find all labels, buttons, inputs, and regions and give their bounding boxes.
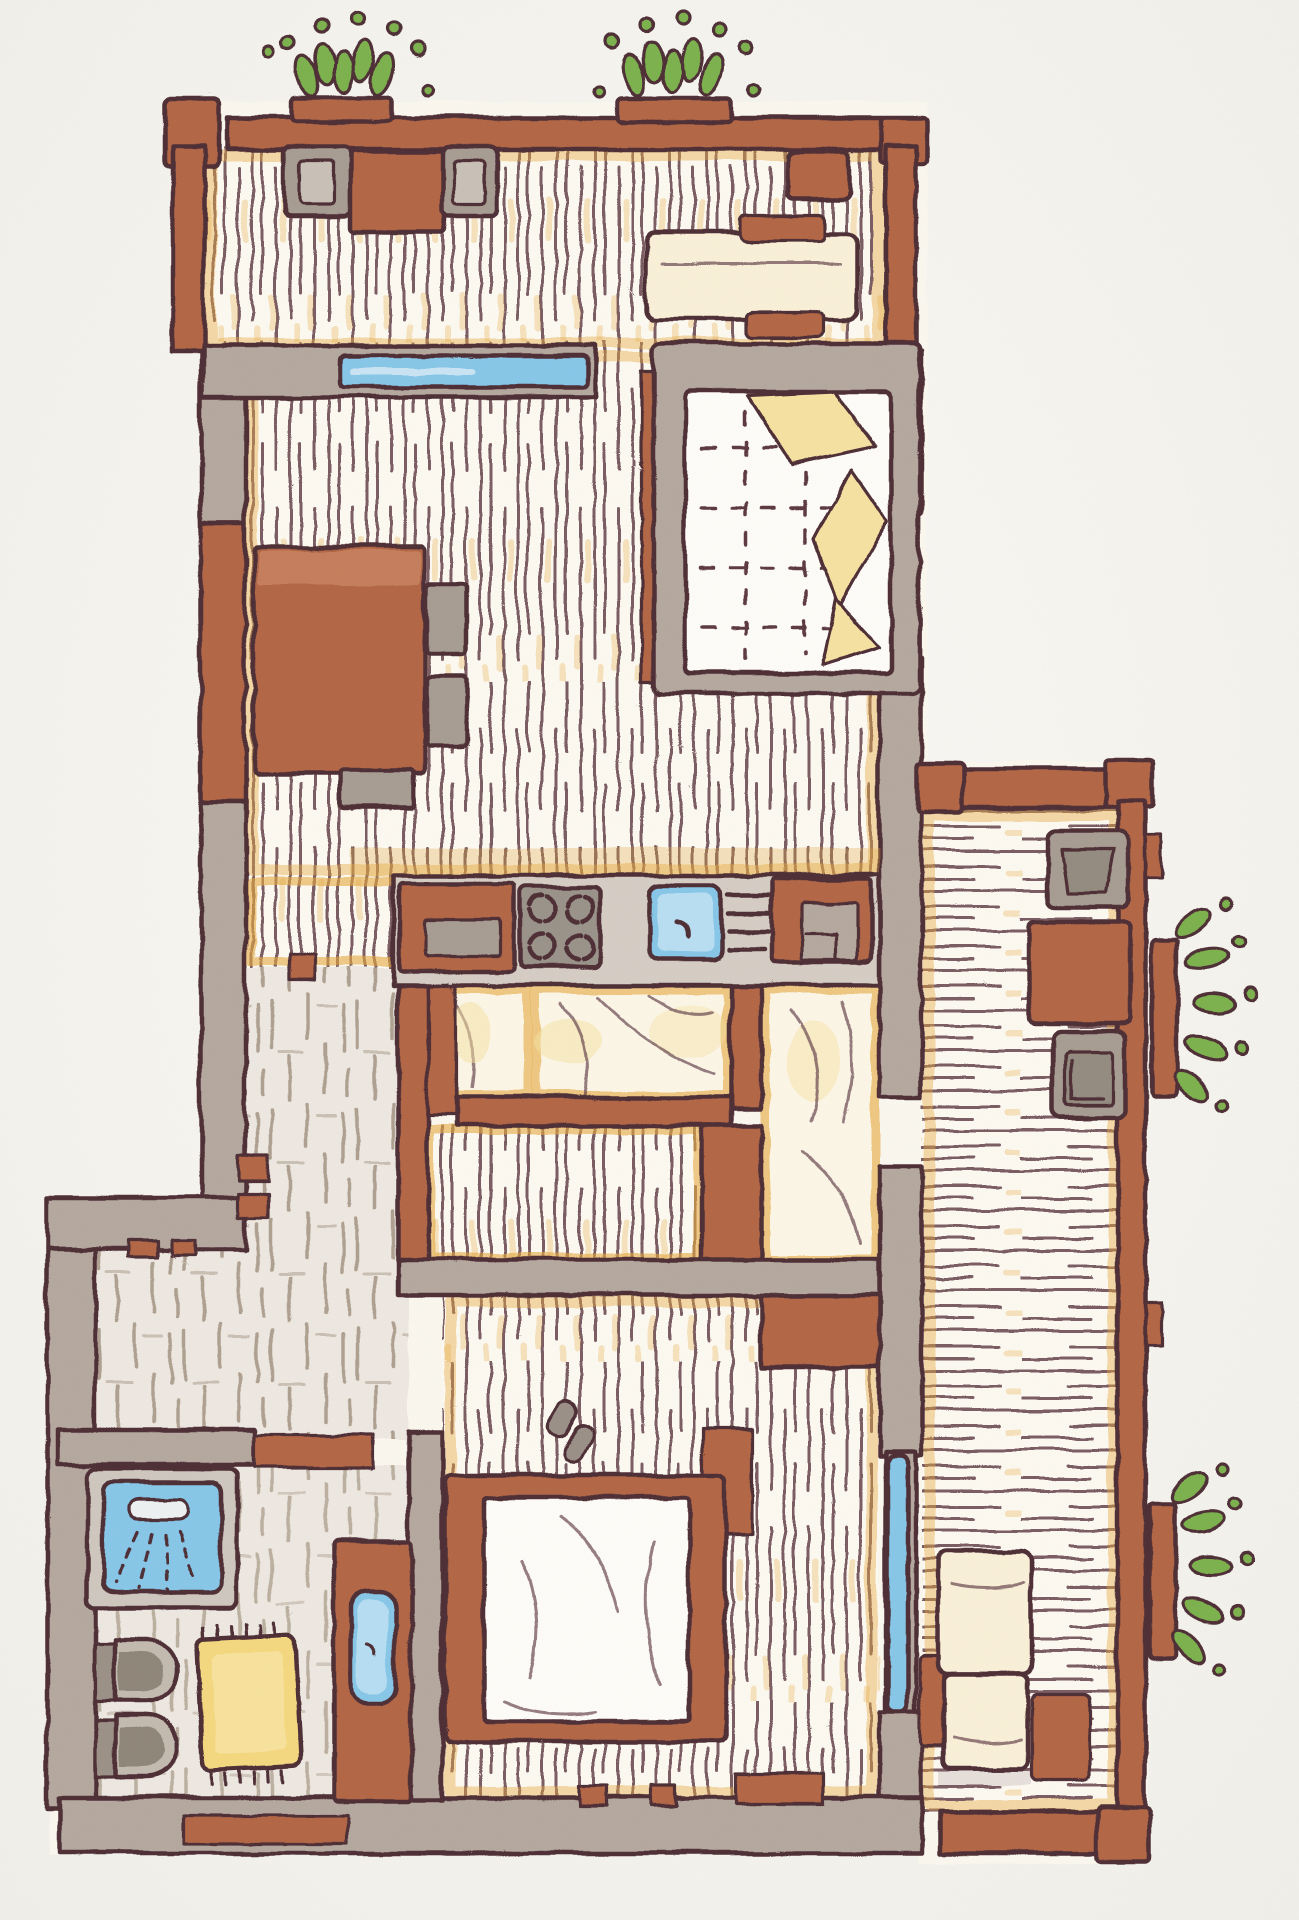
paper-grain-overlay xyxy=(0,0,1299,1920)
floor-plan-canvas xyxy=(0,0,1299,1920)
floor-plan-drawing xyxy=(0,0,1299,1920)
